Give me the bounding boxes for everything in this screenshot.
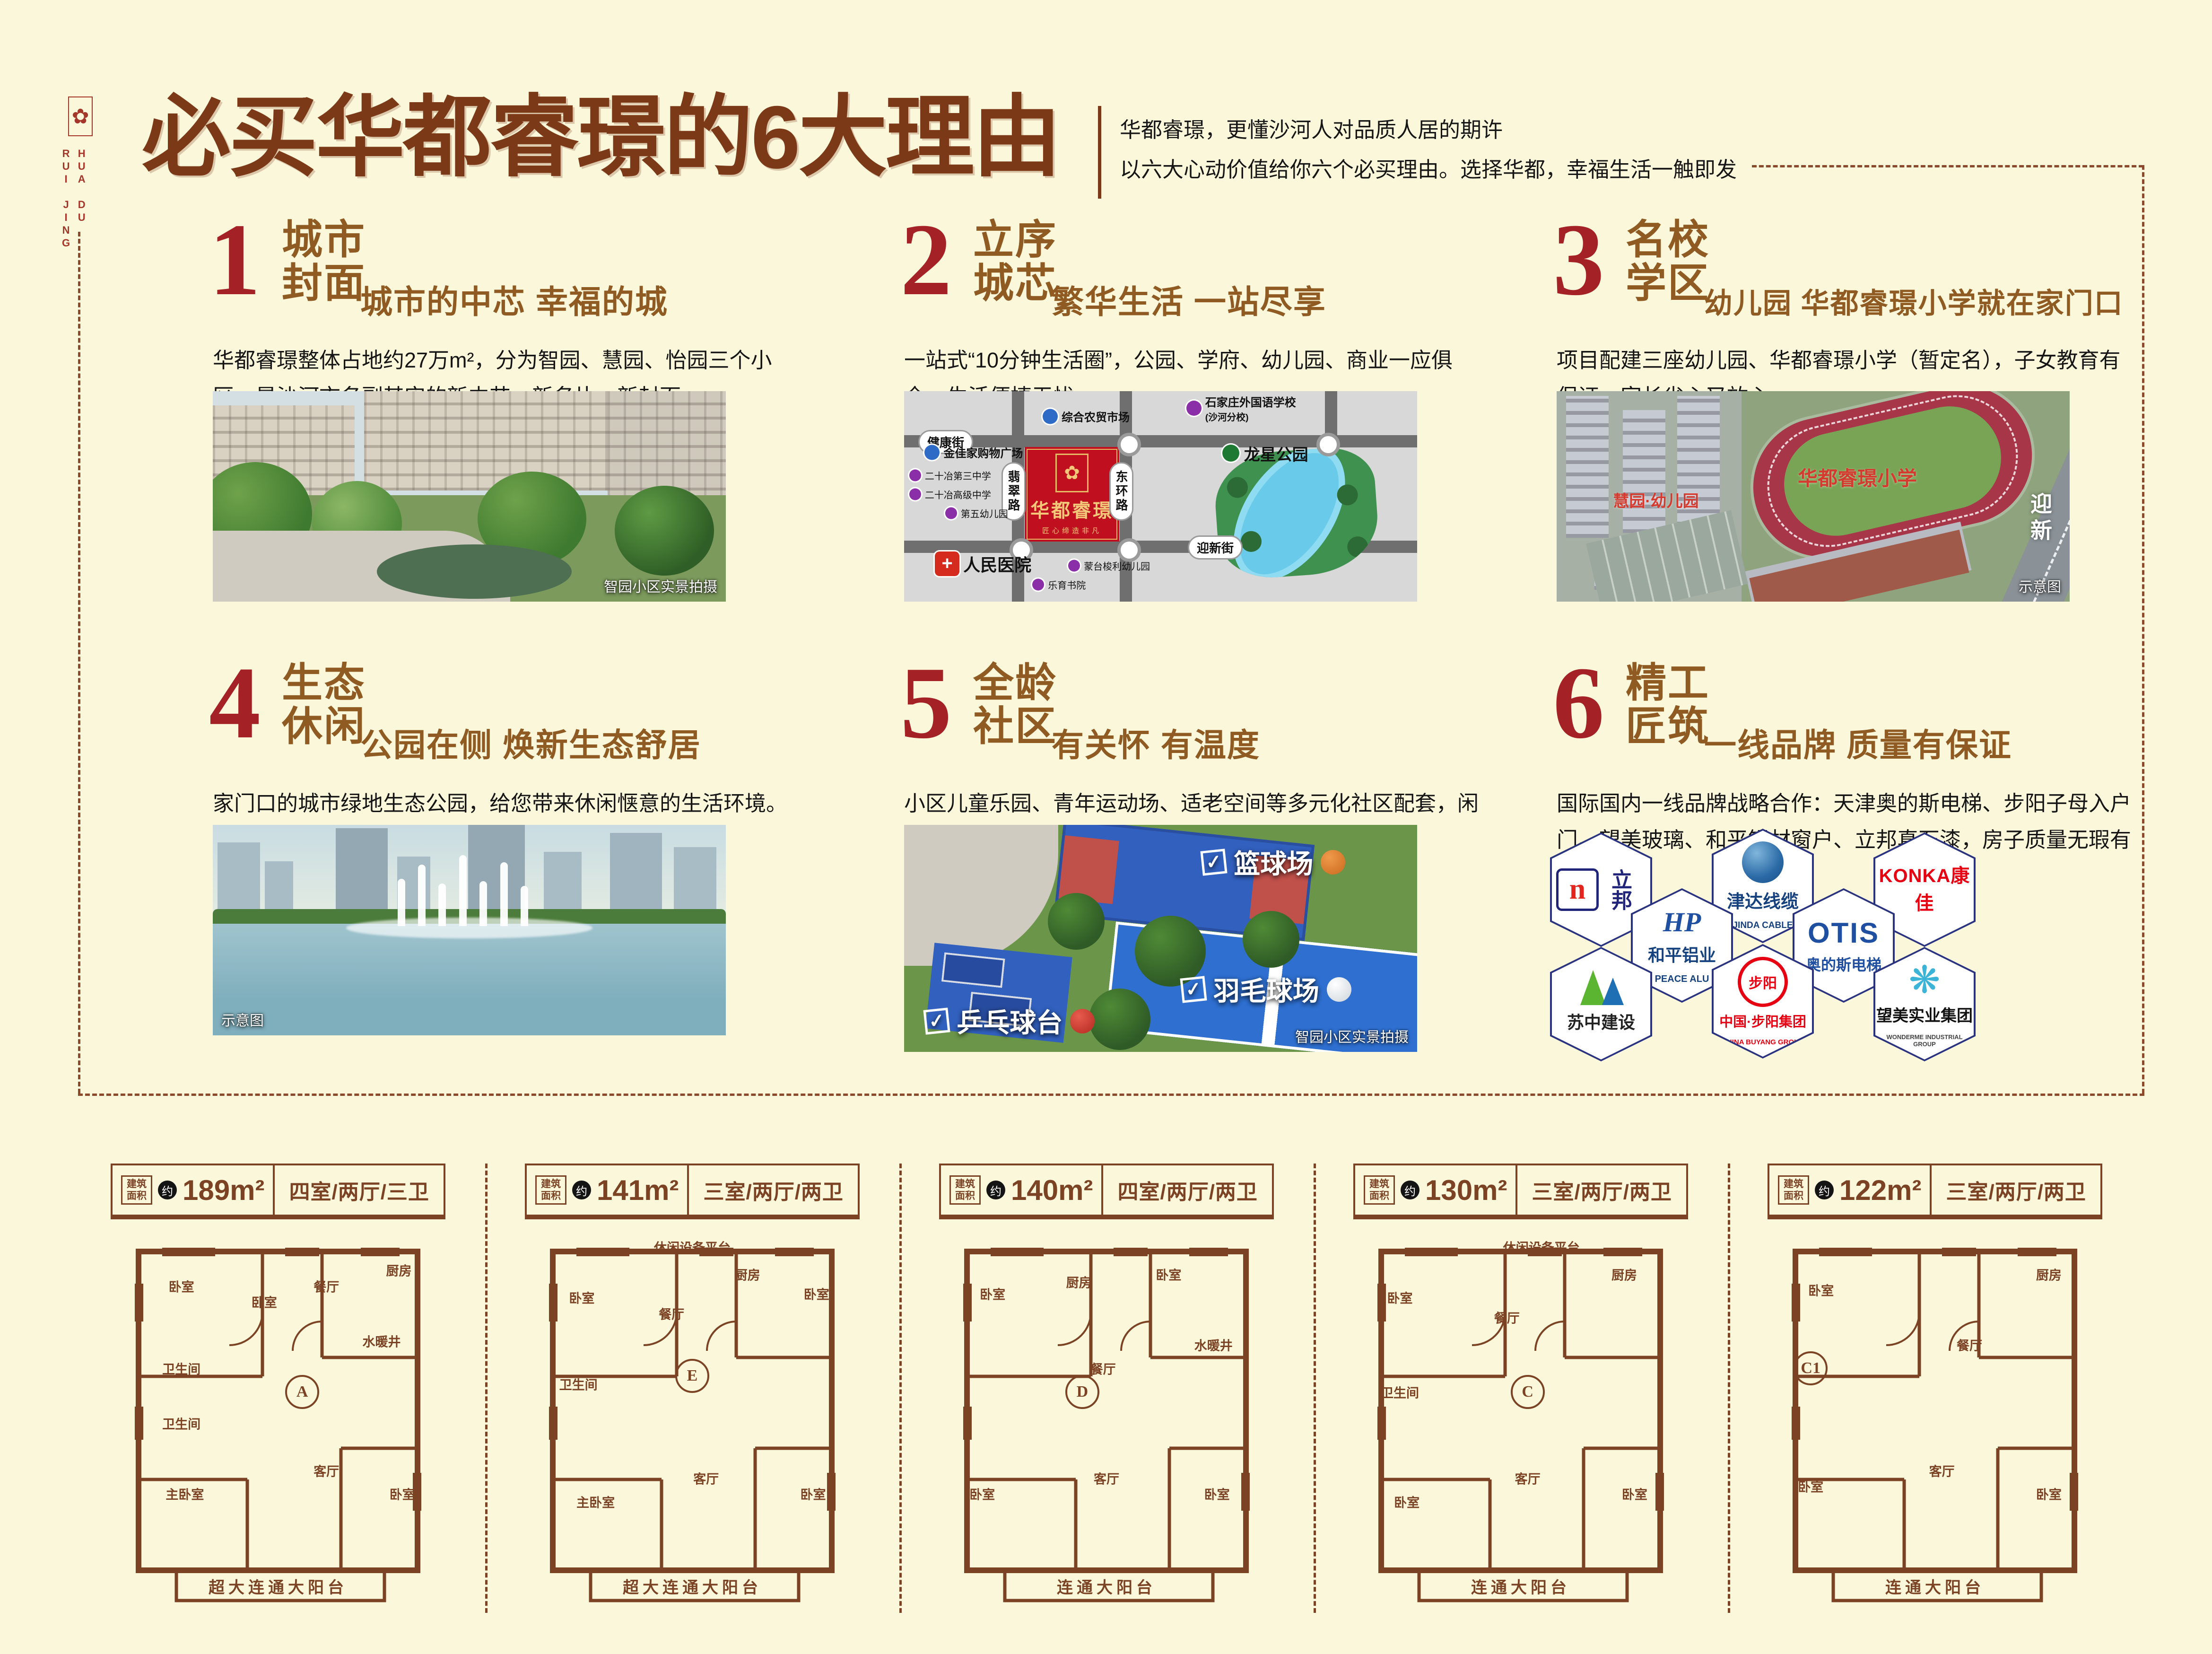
brand-name: 苏中建设 [1567,1009,1635,1033]
lake-shape [213,924,726,1035]
tree-shape [1227,476,1249,499]
floorplan-label: 建筑面积 约 140m² 四室/两厅/两卫 [939,1164,1274,1219]
facility-badge: ✓ 乒乓球台 [924,1002,1095,1040]
room-label: 客厅 [314,1461,339,1479]
map-poi: 二十冶高级中学 [909,488,991,501]
park-lake-photo: 示意图 [213,825,726,1035]
brand-name: 立邦 [1604,869,1635,910]
sports-courts-photo: ✓ 篮球场 ✓ 羽毛球场 ✓ 乒乓球台 智园小区实景拍摄 [904,825,1417,1052]
frame-dash-top [1752,165,2143,167]
room-label: 餐厅 [314,1277,339,1295]
poi-icon [1186,401,1202,416]
approx-badge: 约 [158,1181,177,1199]
floorplans: 建筑面积 约 189m² 四室/两厅/三卫 卧室卧室餐厅厨房水暖井卫生间卫生间主… [71,1159,2142,1636]
section-title: 生态 休闲 [282,661,366,748]
project-name: 华都睿璟 [1030,495,1114,523]
layout-value: 三室/两厅/两卫 [689,1165,858,1215]
project-slogan: 匠心缔造非凡 [1042,525,1102,535]
brand-glyph-icon: HP [1663,906,1701,938]
park-shape [1212,445,1381,581]
room-label: 卫生间 [162,1359,200,1377]
brand-glyph-icon [1742,841,1784,883]
park-label: 龙星公园 [1222,442,1308,465]
tree-shape [1243,911,1299,968]
map-poi: 二十冶第三中学 [909,469,991,482]
layout-value: 四室/两厅/两卫 [1103,1165,1272,1215]
checkbox-icon: ✓ [1180,976,1207,1003]
poi-icon [909,489,921,500]
brand-name: 望美实业集团 [1876,1003,1973,1026]
map-poi: 乐育书院 [1032,578,1086,592]
project-site-marker: ✿ 华都睿璟 匠心缔造非凡 [1025,447,1119,542]
section-title-line: 名校 [1626,217,1710,263]
section-title: 全龄 社区 [973,661,1057,748]
section-title-line: 匠筑 [1626,704,1710,749]
section-title-line: 封面 [282,261,366,306]
room-label: 卧室 [801,1485,826,1503]
school-label: 华都睿璟小学 [1798,463,1917,491]
brand-cn-name: 奥的斯电梯 [1806,953,1881,975]
room-label: 卧室 [1808,1280,1834,1299]
fountain-jet-shape [521,886,528,926]
location-map: 健康街 迎新街 翡翠路 东环路 ✿ 华都睿璟 匠心缔造非凡 龙星公园 综合农 [904,391,1417,602]
section-title-line: 学区 [1626,261,1710,306]
area-box-label: 建筑面积 [949,1175,981,1205]
poster: ✿ RUI JING HUA DU 必买华都睿璟的6大理由 华都睿璟，更懂沙河人… [0,0,2212,1654]
project-emblem-icon: ✿ [1055,454,1089,492]
layout-value: 三室/两厅/两卫 [1932,1165,2100,1215]
section-title-line: 立序 [973,217,1057,263]
layout-value: 三室/两厅/两卫 [1517,1165,1686,1215]
header-subtitle-2: 以六大心动价值给你六个必买理由。选择华都，幸福生活一触即发 [1120,152,1737,183]
room-label: 主卧室 [576,1493,615,1511]
brand-name: OTIS [1808,917,1880,949]
room-label: 卫生间 [1381,1383,1419,1401]
section-title-line: 城市 [282,217,366,263]
section-title-line: 全龄 [973,660,1057,706]
section-quality-brands: 6 精工 匠筑 一线品牌 质量有保证 国际国内一线品牌战略合作：天津奥的斯电梯、… [1528,658,2134,1101]
brand-logotype: RUI JING HUA DU [61,148,87,250]
poi-icon [909,470,921,481]
photo-caption: 示意图 [2019,575,2061,596]
facility-icon [1321,850,1345,875]
poi-label: 人民医院 [963,551,1031,576]
community-photo: 智园小区实景拍摄 [213,391,726,602]
section-number: 6 [1553,652,1604,755]
brand-name: 和平铝业 [1648,942,1716,966]
area-box-label: 建筑面积 [121,1175,152,1205]
poi-label: 乐育书院 [1048,578,1086,592]
room-label: 厨房 [1611,1265,1637,1283]
room-label: 卧室 [1204,1485,1230,1503]
tree-shape [1089,989,1150,1050]
room-label: 水暖井 [363,1331,401,1350]
area-value: 140m² [1011,1174,1093,1207]
map-poi: 综合农贸市场 [1043,408,1130,425]
room-label: 卧室 [252,1292,277,1311]
area-box-label: 建筑面积 [1778,1175,1809,1205]
road-label: 东环路 [1109,462,1133,521]
unit-letter-badge: C [1511,1375,1545,1409]
room-label: 卧室 [1622,1485,1647,1503]
section-title-line: 休闲 [282,704,366,749]
header-divider [1098,106,1101,199]
poi-label: 第五幼儿园 [961,507,1008,520]
checkbox-icon: ✓ [923,1007,950,1034]
approx-badge: 约 [1815,1181,1834,1199]
building-shape [1566,396,1609,538]
room-label: 卧室 [569,1288,594,1307]
building-silhouette [336,828,388,913]
fountain-mist-shape [346,918,592,939]
brand-name: KONKA康佳 [1875,860,1974,915]
section-city-core: 2 立序 城芯 繁华生活 一站尽享 一站式“10分钟生活圈”，公园、学府、幼儿园… [876,215,1481,657]
map-poi: 第五幼儿园 [945,507,1008,520]
floorplan-label: 建筑面积 约 141m² 三室/两厅/两卫 [525,1164,860,1219]
section-title-line: 生态 [282,660,366,706]
tree-shape [1336,483,1359,506]
section-title-line: 社区 [973,704,1057,749]
balcony-label: 连通大阳台 [1057,1575,1156,1598]
section-tagline: 城市的中芯 幸福的城 [360,276,668,323]
kindergarten-label: 慧园·幼儿园 [1613,488,1698,511]
floorplan-label: 建筑面积 约 189m² 四室/两厅/三卫 [111,1164,445,1219]
brand-name: 津达线缆 [1727,887,1799,913]
road-label: 迎新街 [1188,535,1243,560]
section-number: 5 [900,652,952,755]
brand-glyph-icon: 步阳 [1738,957,1788,1007]
room-label: 休闲设备平台 [1503,1237,1580,1256]
fountain-jet-shape [459,855,467,926]
roundabout-shape [1117,538,1141,562]
room-label: 厨房 [735,1265,760,1283]
room-label: 餐厅 [1957,1336,1982,1354]
floorplan: 建筑面积 约 122m² 三室/两厅/两卫 卧室厨房餐厅卧室客厅卧室 C1 连通… [1728,1159,2142,1636]
room-label: 餐厅 [1090,1359,1116,1377]
brand-en-name: PEACE ALU [1655,974,1709,985]
floorplan: 建筑面积 约 140m² 四室/两厅/两卫 卧室厨房卧室水暖井餐厅卧室客厅卧室 … [899,1159,1314,1636]
facility-label: 羽毛球场 [1213,970,1319,1008]
facility-icon [1327,977,1351,1002]
floorplan-drawing: 休闲设备平台卧室厨房餐厅卧室卫生间主卧室客厅卧室 E 超大连通大阳台 [520,1227,865,1619]
section-title: 名校 学区 [1626,218,1710,305]
area-box-label: 建筑面积 [1364,1175,1395,1205]
room-label: 卫生间 [559,1375,598,1393]
poi-icon [1068,560,1080,572]
room-label: 水暖井 [1194,1336,1233,1354]
floorplan: 建筑面积 约 141m² 三室/两厅/两卫 休闲设备平台卧室厨房餐厅卧室卫生间主… [485,1159,899,1636]
unit-letter-badge: C1 [1794,1351,1828,1385]
fountain-jet-shape [438,884,446,926]
section-city-cover: 1 城市 封面 城市的中芯 幸福的城 华都睿璟整体占地约27万m²，分为智园、慧… [184,215,790,657]
brand-en-name: WONDERME INDUSTRIAL GROUP [1875,1033,1974,1048]
building-silhouette [544,852,582,913]
brand-en-name: JINDA CABLE [1733,920,1793,931]
page-title: 必买华都睿璟的6大理由 [142,93,1060,182]
room-label: 客厅 [1094,1469,1119,1488]
fountain-jet-shape [500,862,508,926]
section-body: 家门口的城市绿地生态公园，给您带来休闲惬意的生活环境。 [213,785,789,822]
floorplan-drawing: 卧室卧室餐厅厨房水暖井卫生间卫生间主卧室客厅卧室 A 超大连通大阳台 [105,1227,451,1619]
school-aerial-photo: 华都睿璟小学 慧园·幼儿园 迎新 示意图 [1557,391,2070,602]
approx-badge: 约 [1401,1181,1420,1199]
room-label: 卧室 [980,1285,1005,1303]
building-silhouette [610,833,662,913]
floorplan: 建筑面积 约 130m² 三室/两厅/两卫 休闲设备平台卧室餐厅厨房卫生间卧室客… [1314,1159,1728,1636]
section-eco-leisure: 4 生态 休闲 公园在侧 焕新生态舒居 家门口的城市绿地生态公园，给您带来休闲惬… [184,658,790,1101]
floorplan: 建筑面积 约 189m² 四室/两厅/三卫 卧室卧室餐厅厨房水暖井卫生间卫生间主… [71,1159,485,1636]
facility-badge: ✓ 羽毛球场 [1181,970,1351,1008]
roundabout-shape [1117,433,1141,456]
poi-label: 综合农贸市场 [1062,408,1130,425]
poi-label: 二十冶第三中学 [925,469,991,482]
tree-shape [615,486,714,576]
room-label: 卫生间 [162,1414,200,1433]
floorplan-label: 建筑面积 约 130m² 三室/两厅/两卫 [1353,1164,1688,1219]
section-title: 立序 城芯 [973,218,1057,305]
room-label: 卧室 [2036,1485,2062,1503]
room-label: 卧室 [804,1285,829,1303]
tree-shape [1347,535,1369,558]
tree-shape [1048,893,1105,950]
balcony-label: 连通大阳台 [1885,1575,1985,1598]
unit-letter-badge: D [1065,1375,1099,1409]
header-subtitle-1: 华都睿璟，更懂沙河人对品质人居的期许 [1120,113,1503,143]
facility-label: 乒乓球台 [957,1002,1062,1040]
building-silhouette [674,847,716,913]
roundabout-shape [1316,433,1340,456]
plaza-shape [904,825,1058,966]
logo-text-line: RUI JING [61,148,71,250]
floorplan-label: 建筑面积 约 122m² 三室/两厅/两卫 [1768,1164,2102,1219]
balcony-label: 超大连通大阳台 [209,1575,348,1598]
area-value: 189m² [183,1174,264,1207]
facility-label: 篮球场 [1234,843,1313,881]
balcony-label: 超大连通大阳台 [623,1575,762,1598]
floorplan-drawing: 休闲设备平台卧室餐厅厨房卫生间卧室客厅卧室 C 连通大阳台 [1348,1227,1693,1619]
room-label: 餐厅 [1494,1308,1520,1326]
room-label: 卧室 [1798,1477,1823,1495]
brand-glyph-icon: n [1556,868,1599,911]
section-title: 精工 匠筑 [1626,661,1710,748]
room-label: 厨房 [2036,1265,2062,1283]
section-number: 4 [209,652,261,755]
pond-shape [377,544,572,599]
area-box-label: 建筑面积 [535,1175,566,1205]
poi-icon [1043,409,1058,424]
section-tagline: 一线品牌 质量有保证 [1704,719,2012,766]
facility-badge: ✓ 篮球场 [1202,843,1345,881]
section-number: 3 [1553,209,1604,312]
room-label: 卧室 [1394,1493,1420,1511]
balcony-label: 连通大阳台 [1471,1575,1570,1598]
fountain-jet-shape [418,865,426,926]
approx-badge: 约 [572,1181,591,1199]
building-silhouette [265,861,293,913]
poi-label: 石家庄外国语学校(沙河分校) [1205,393,1296,423]
photo-caption: 智园小区实景拍摄 [1295,1025,1409,1046]
map-poi: 金佳家购物广场 [924,444,1023,461]
building-silhouette [218,842,260,913]
section-title: 城市 封面 [282,218,366,305]
park-name: 龙星公园 [1244,442,1308,465]
poi-icon [1032,579,1044,591]
tree-icon [1222,445,1239,462]
area-value: 122m² [1839,1174,1921,1207]
section-title-line: 城芯 [973,261,1057,306]
unit-letter-badge: A [285,1375,319,1409]
poi-label: 蒙台梭利幼儿园 [1084,559,1150,573]
poi-label: 二十冶高级中学 [925,488,991,501]
brand-en-name: CHINA BUYANG GROUP [1722,1038,1804,1046]
brand-name: 中国·步阳集团 [1719,1011,1806,1031]
map-poi: 蒙台梭利幼儿园 [1068,559,1150,573]
map-poi: + 人民医院 [935,551,1031,576]
fountain-jet-shape [398,879,405,926]
room-label: 卧室 [1387,1288,1413,1307]
frame-dash-left [78,232,80,1094]
room-label: 餐厅 [659,1304,684,1322]
room-label: 客厅 [693,1469,719,1488]
unit-letter-badge: E [675,1359,709,1393]
section-tagline: 公园在侧 焕新生态舒居 [360,719,701,766]
brand-glyph-icon: ❋ [1908,961,1940,999]
poi-icon [924,445,940,460]
room-label: 主卧室 [165,1485,204,1503]
layout-value: 四室/两厅/三卫 [275,1165,444,1215]
room-label: 卧室 [1156,1265,1181,1283]
map-road [1325,391,1337,438]
frame-dash-right [2142,165,2144,1094]
checkbox-icon: ✓ [1201,849,1228,875]
floorplan-drawing: 卧室厨房餐厅卧室客厅卧室 C1 连通大阳台 [1762,1227,2107,1619]
building-silhouette [468,825,525,913]
section-all-age-community: 5 全龄 社区 有关怀 有温度 小区儿童乐园、青年运动场、适老空间等多元化社区配… [876,658,1481,1101]
photo-caption: 智园小区实景拍摄 [604,575,717,596]
room-label: 厨房 [386,1261,412,1279]
room-label: 卧室 [169,1277,194,1295]
brand-emblem-icon: ✿ [65,94,96,139]
section-school-district: 3 名校 学区 幼儿园 华都睿璟小学就在家门口 项目配建三座幼儿园、华都睿璟小学… [1528,215,2134,657]
area-value: 130m² [1425,1174,1507,1207]
section-title-line: 精工 [1626,660,1710,706]
lake-shape [1212,445,1368,581]
photo-caption: 示意图 [221,1009,264,1030]
building-shape [1623,410,1665,533]
brand-hex-grid: n 立邦 津达线缆 JINDA CABLE KONKA康佳 HP 和平铝业 PE… [1541,829,2078,1075]
room-label: 卧室 [969,1485,995,1503]
facility-icon [1070,1009,1095,1033]
poi-label: 金佳家购物广场 [943,444,1023,461]
section-number: 2 [900,209,952,312]
area-value: 141m² [597,1174,679,1207]
room-label: 卧室 [390,1485,415,1503]
map-poi: 石家庄外国语学校(沙河分校) [1186,393,1296,423]
road-name-label: 迎新 [2024,492,2055,545]
room-label: 客厅 [1929,1461,1955,1479]
room-label: 厨房 [1066,1273,1092,1291]
room-label: 休闲设备平台 [654,1237,731,1256]
brand-glyph-icon [1578,967,1624,1005]
section-tagline: 有关怀 有温度 [1052,719,1260,766]
poi-icon [945,508,957,519]
poi-icon: + [935,551,959,576]
approx-badge: 约 [986,1181,1005,1199]
room-label: 客厅 [1515,1469,1541,1488]
fountain-jet-shape [479,881,487,926]
section-tagline: 繁华生活 一站尽享 [1052,276,1326,323]
section-number: 1 [209,209,261,312]
building-shape [364,391,619,490]
floorplan-drawing: 卧室厨房卧室水暖井餐厅卧室客厅卧室 D 连通大阳台 [934,1227,1279,1619]
section-tagline: 幼儿园 华都睿璟小学就在家门口 [1704,280,2124,322]
